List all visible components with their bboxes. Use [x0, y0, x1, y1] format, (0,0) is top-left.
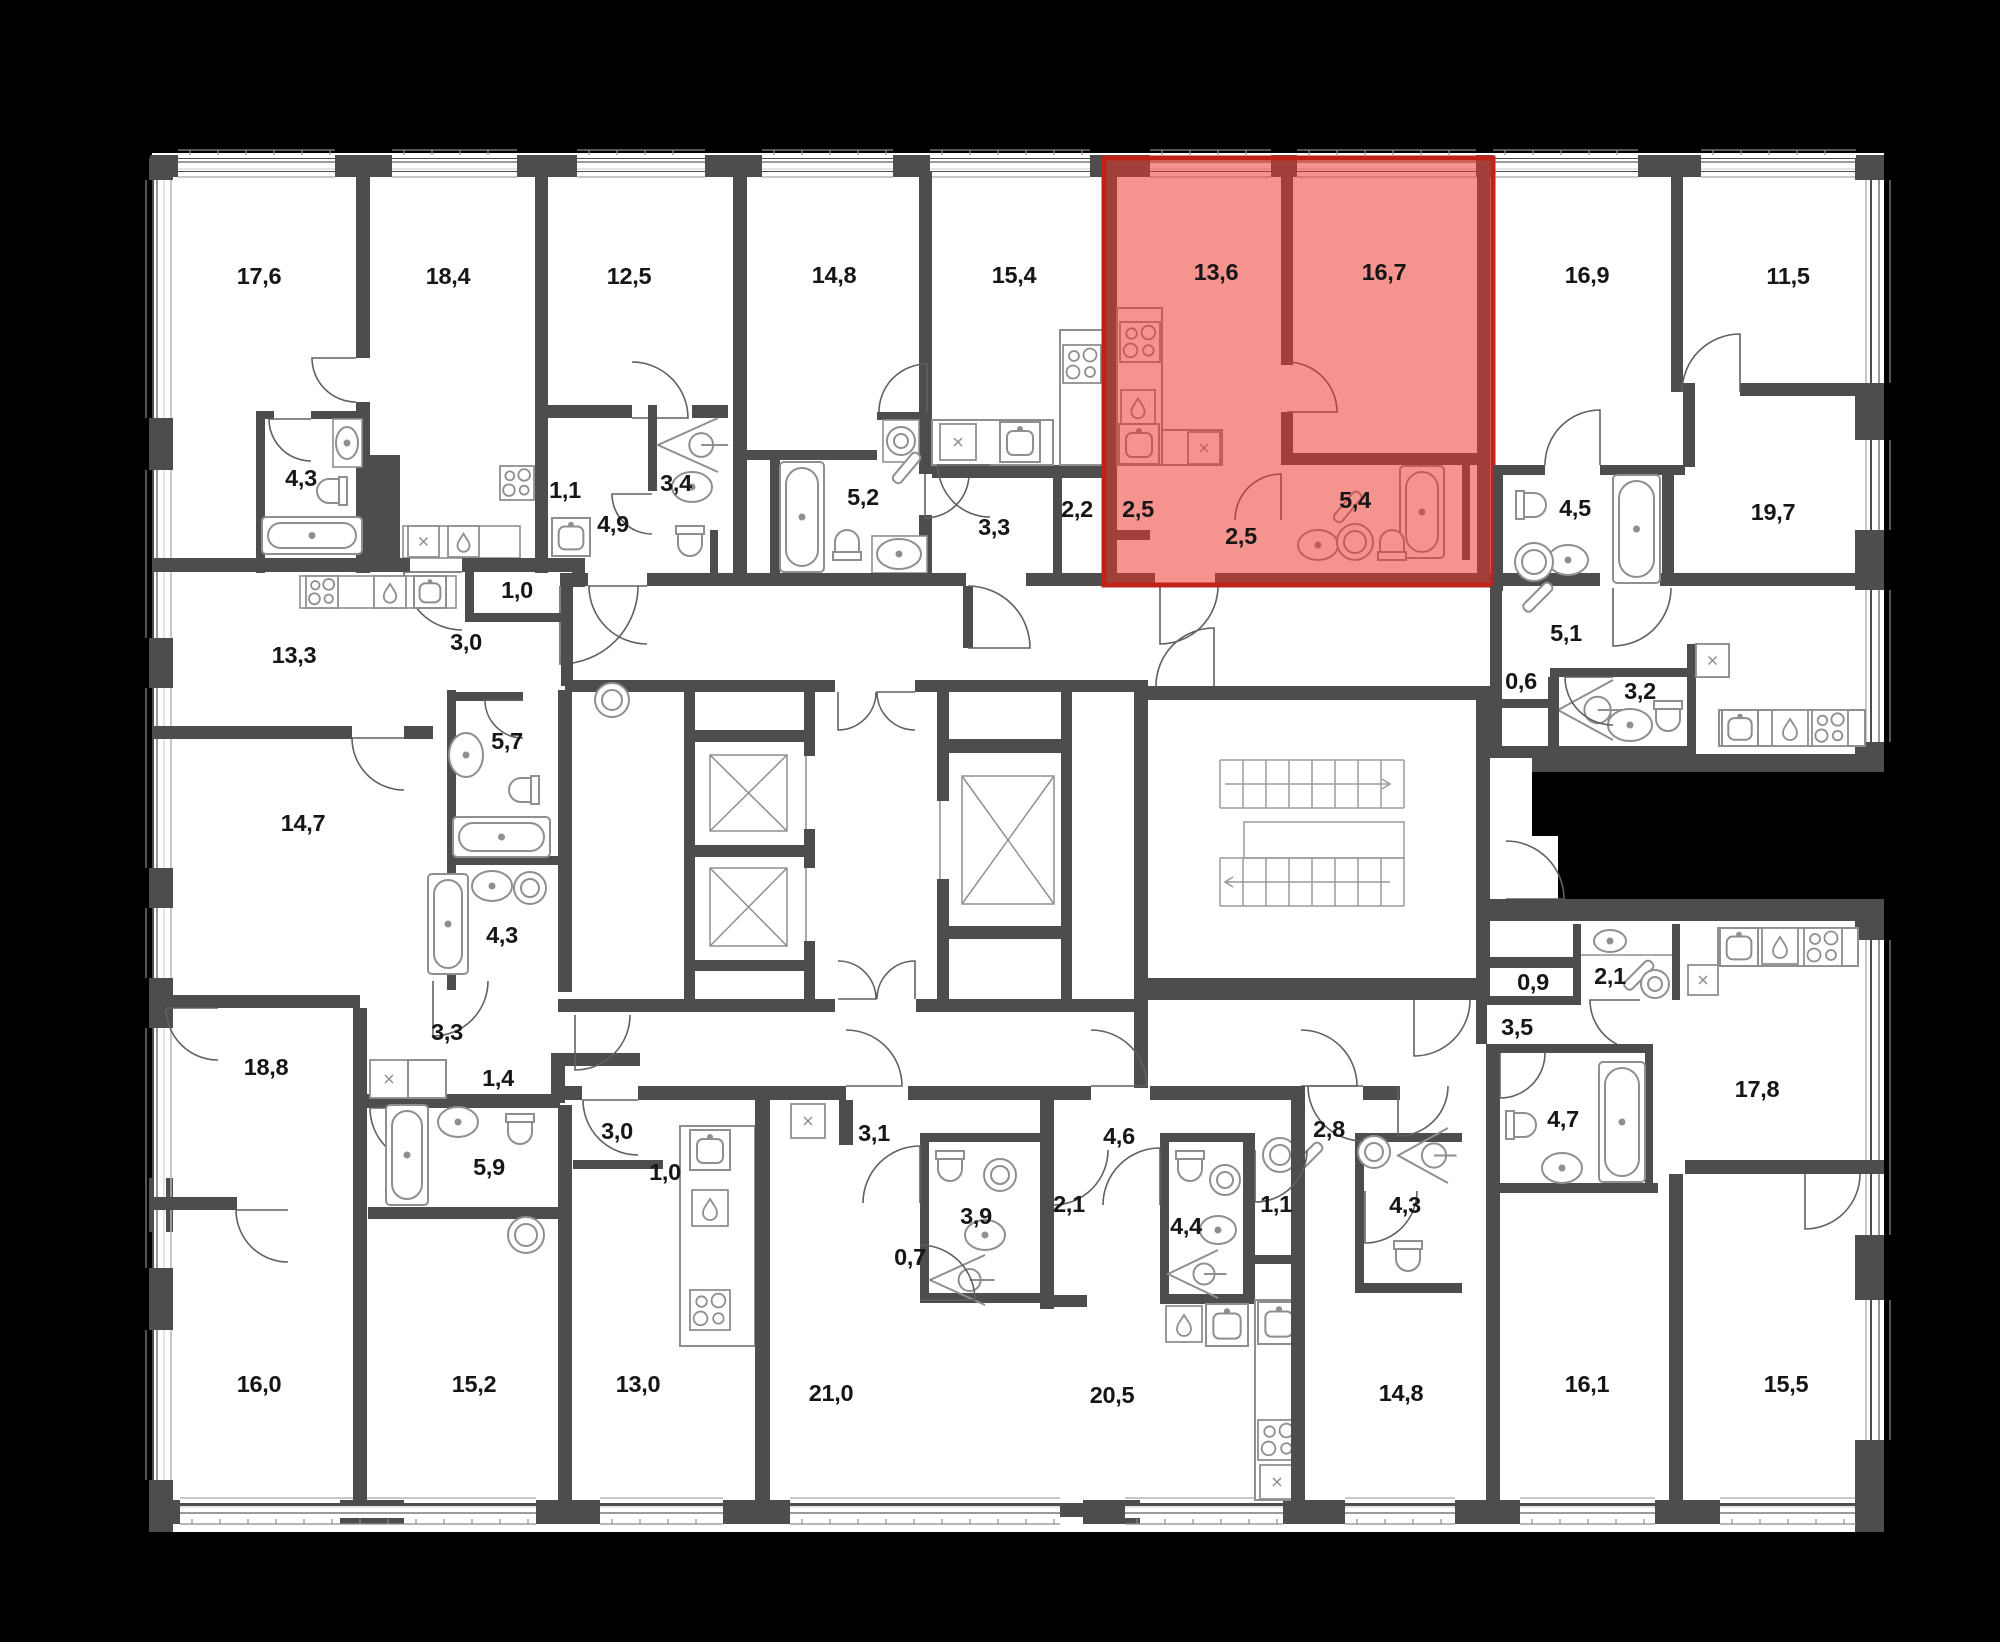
svg-text:17,8: 17,8 [1735, 1076, 1780, 1102]
svg-text:21,0: 21,0 [809, 1380, 854, 1406]
svg-text:13,6: 13,6 [1194, 259, 1239, 285]
svg-text:4,4: 4,4 [1170, 1213, 1202, 1239]
svg-text:15,2: 15,2 [452, 1371, 497, 1397]
svg-text:4,9: 4,9 [597, 511, 629, 537]
svg-text:11,5: 11,5 [1766, 263, 1809, 289]
svg-text:3,1: 3,1 [858, 1120, 890, 1146]
svg-text:2,5: 2,5 [1122, 496, 1154, 522]
svg-text:3,9: 3,9 [960, 1203, 992, 1229]
svg-text:5,2: 5,2 [847, 484, 879, 510]
svg-text:4,3: 4,3 [1389, 1192, 1421, 1218]
svg-text:5,1: 5,1 [1550, 620, 1582, 646]
svg-text:4,3: 4,3 [285, 465, 317, 491]
svg-text:0,7: 0,7 [894, 1244, 926, 1270]
svg-text:1,1: 1,1 [549, 477, 581, 503]
svg-text:0,9: 0,9 [1517, 969, 1549, 995]
svg-text:4,6: 4,6 [1103, 1123, 1135, 1149]
svg-text:16,0: 16,0 [237, 1371, 282, 1397]
svg-text:4,3: 4,3 [486, 922, 518, 948]
svg-text:18,8: 18,8 [244, 1054, 289, 1080]
svg-text:13,3: 13,3 [272, 642, 317, 668]
svg-text:14,8: 14,8 [812, 262, 857, 288]
svg-text:1,0: 1,0 [501, 577, 533, 603]
svg-text:15,4: 15,4 [992, 262, 1037, 288]
svg-text:3,4: 3,4 [660, 470, 692, 496]
svg-text:20,5: 20,5 [1090, 1382, 1135, 1408]
svg-text:3,0: 3,0 [601, 1118, 633, 1144]
svg-text:2,1: 2,1 [1594, 963, 1626, 989]
svg-text:3,0: 3,0 [450, 629, 482, 655]
svg-text:3,5: 3,5 [1501, 1014, 1533, 1040]
svg-text:16,1: 16,1 [1565, 1371, 1610, 1397]
svg-text:4,7: 4,7 [1547, 1106, 1579, 1132]
svg-text:2,2: 2,2 [1061, 496, 1093, 522]
svg-text:1,1: 1,1 [1260, 1191, 1292, 1217]
svg-text:14,8: 14,8 [1379, 1380, 1424, 1406]
svg-text:16,9: 16,9 [1565, 262, 1610, 288]
svg-text:2,1: 2,1 [1053, 1191, 1085, 1217]
svg-text:2,8: 2,8 [1313, 1116, 1345, 1142]
svg-text:1,0: 1,0 [649, 1159, 681, 1185]
svg-text:5,4: 5,4 [1339, 487, 1371, 513]
svg-text:3,3: 3,3 [978, 514, 1010, 540]
svg-text:5,7: 5,7 [491, 728, 523, 754]
svg-text:4,5: 4,5 [1559, 495, 1591, 521]
svg-text:5,9: 5,9 [473, 1154, 505, 1180]
svg-text:3,2: 3,2 [1624, 678, 1656, 704]
svg-text:19,7: 19,7 [1751, 499, 1796, 525]
svg-text:18,4: 18,4 [426, 263, 471, 289]
svg-text:3,3: 3,3 [431, 1019, 463, 1045]
svg-text:17,6: 17,6 [237, 263, 282, 289]
svg-text:1,4: 1,4 [482, 1065, 514, 1091]
svg-text:0,6: 0,6 [1505, 668, 1537, 694]
svg-text:14,7: 14,7 [281, 810, 326, 836]
svg-text:12,5: 12,5 [607, 263, 652, 289]
svg-text:15,5: 15,5 [1764, 1371, 1809, 1397]
svg-text:13,0: 13,0 [616, 1371, 661, 1397]
svg-text:2,5: 2,5 [1225, 523, 1257, 549]
svg-text:16,7: 16,7 [1362, 259, 1407, 285]
